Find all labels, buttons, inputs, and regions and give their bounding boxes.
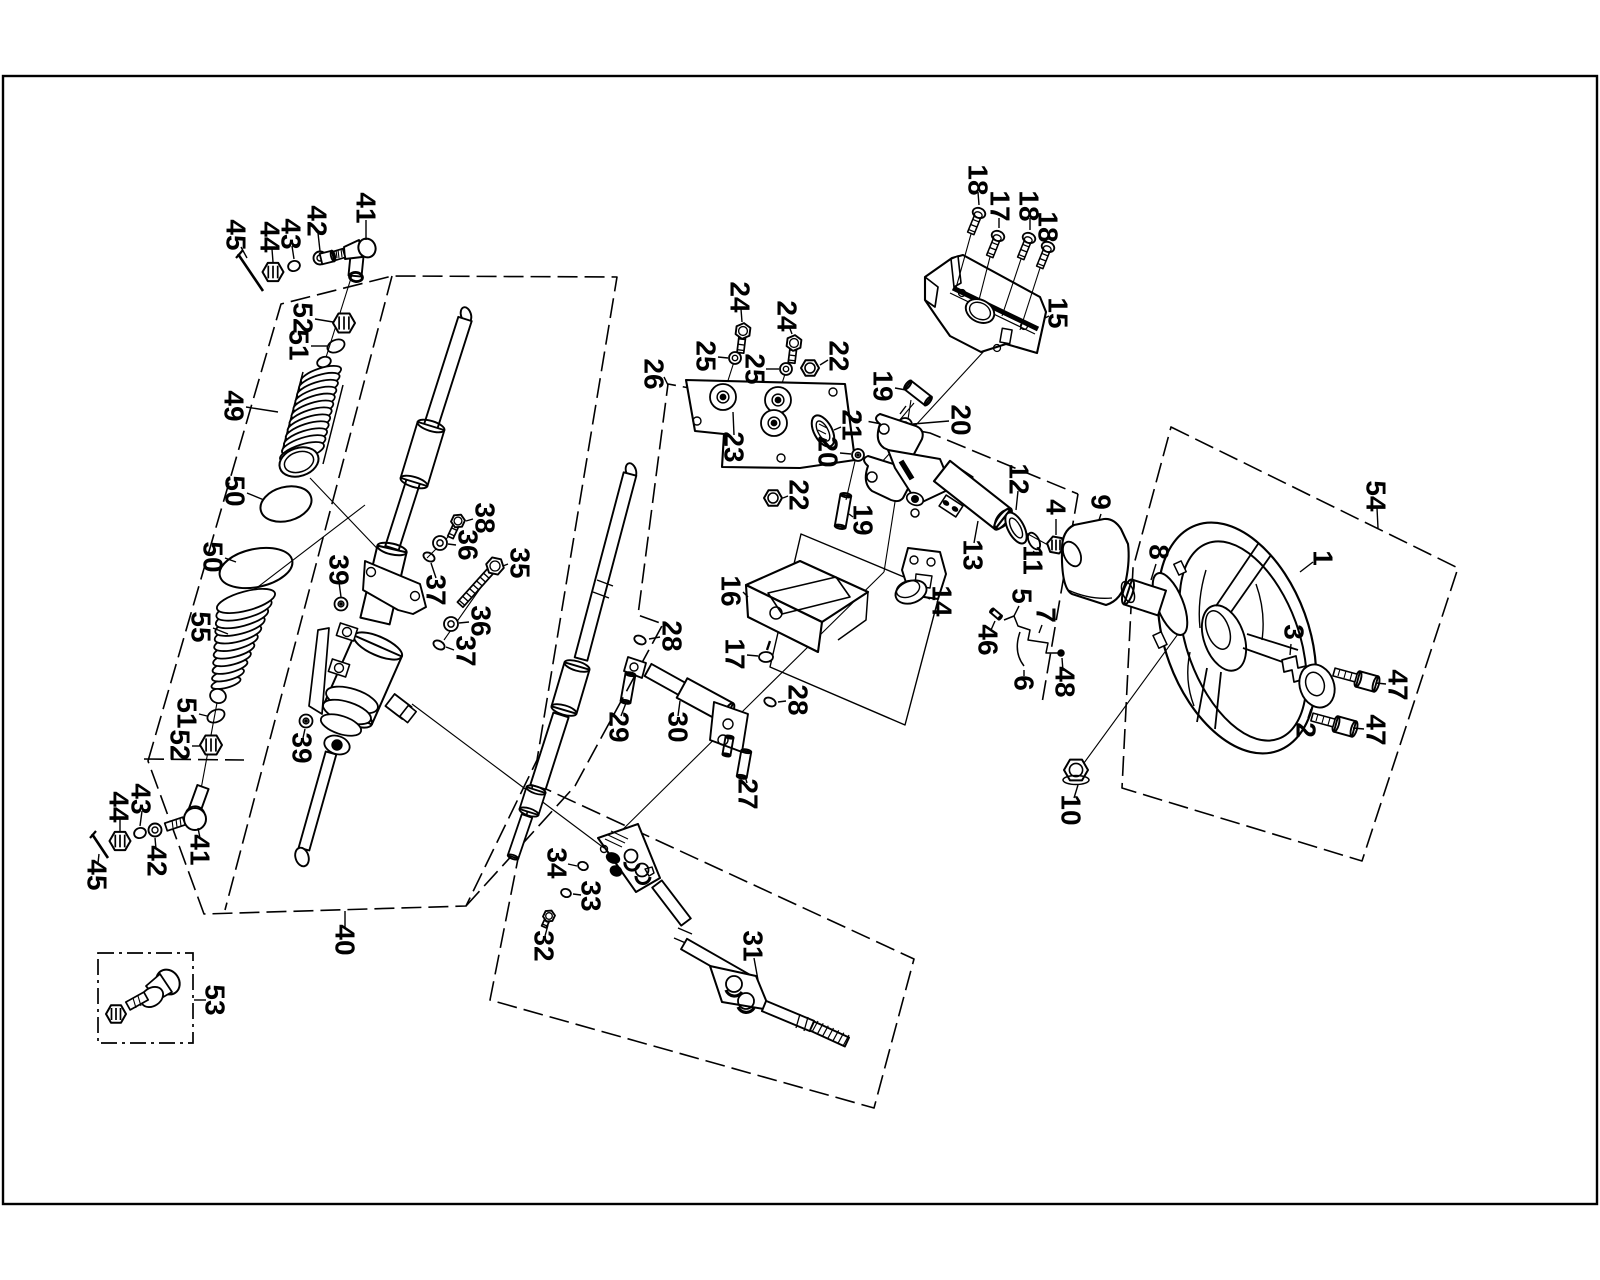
svg-text:37: 37 [421,574,452,605]
svg-text:55: 55 [186,611,217,642]
svg-text:53: 53 [200,984,231,1015]
svg-text:25: 25 [691,340,722,371]
svg-text:33: 33 [576,880,607,911]
svg-text:52: 52 [165,729,196,760]
svg-text:22: 22 [784,479,815,510]
svg-text:37: 37 [451,635,482,666]
svg-text:1: 1 [1308,550,1339,566]
svg-text:19: 19 [868,370,899,401]
svg-text:17: 17 [720,638,751,669]
svg-text:42: 42 [302,205,333,236]
svg-text:28: 28 [783,684,814,715]
svg-text:39: 39 [324,554,355,585]
svg-text:25: 25 [740,353,771,384]
svg-text:16: 16 [716,575,747,606]
svg-text:3: 3 [1279,624,1310,640]
svg-text:48: 48 [1050,666,1081,697]
svg-text:47: 47 [1361,714,1392,745]
svg-text:6: 6 [1009,675,1040,691]
svg-text:27: 27 [733,778,764,809]
svg-text:10: 10 [1056,794,1087,825]
svg-text:14: 14 [927,585,958,617]
svg-text:22: 22 [824,340,855,371]
svg-text:34: 34 [542,847,573,879]
svg-text:15: 15 [1043,297,1074,328]
svg-text:50: 50 [220,475,251,506]
svg-text:17: 17 [985,190,1016,221]
svg-text:20: 20 [813,436,844,467]
svg-text:18: 18 [1033,211,1064,242]
svg-text:36: 36 [453,529,484,560]
svg-text:11: 11 [1018,545,1049,575]
svg-text:7: 7 [1031,607,1062,623]
svg-text:9: 9 [1086,494,1117,510]
svg-text:19: 19 [848,504,879,535]
svg-text:20: 20 [946,404,977,435]
svg-text:24: 24 [725,281,756,313]
svg-text:32: 32 [529,930,560,961]
svg-text:31: 31 [738,930,769,961]
svg-text:28: 28 [657,620,688,651]
svg-text:8: 8 [1144,544,1175,560]
svg-text:4: 4 [1041,499,1072,515]
svg-text:24: 24 [772,300,803,332]
svg-text:26: 26 [639,358,670,389]
svg-text:2: 2 [1291,722,1322,738]
svg-text:47: 47 [1383,669,1414,700]
svg-text:23: 23 [719,431,750,462]
svg-text:40: 40 [330,924,361,955]
svg-text:45: 45 [82,859,113,890]
svg-text:45: 45 [221,219,252,250]
svg-text:12: 12 [1004,463,1035,494]
svg-text:13: 13 [958,539,989,570]
svg-text:49: 49 [219,390,250,421]
svg-text:41: 41 [185,834,216,865]
svg-text:30: 30 [663,711,694,742]
svg-text:44: 44 [104,791,135,823]
svg-text:42: 42 [142,845,173,876]
svg-text:36: 36 [466,605,497,636]
svg-text:50: 50 [198,541,229,572]
svg-text:51: 51 [284,329,315,360]
svg-text:54: 54 [1361,480,1392,512]
svg-text:5: 5 [1007,588,1038,604]
svg-text:39: 39 [287,732,318,763]
svg-text:46: 46 [973,624,1004,655]
svg-text:41: 41 [351,192,382,223]
svg-text:51: 51 [172,697,203,728]
svg-text:29: 29 [604,711,635,742]
svg-text:35: 35 [505,547,536,578]
